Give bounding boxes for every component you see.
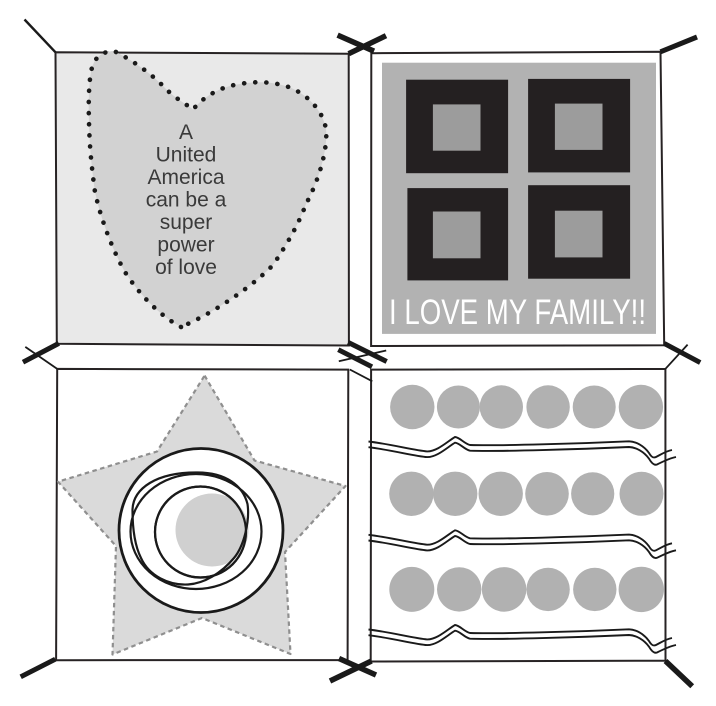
- svg-text:United: United: [156, 144, 217, 167]
- svg-text:America: America: [147, 166, 224, 189]
- svg-text:super: super: [160, 211, 213, 234]
- svg-text:A: A: [179, 121, 193, 144]
- svg-text:can be a: can be a: [146, 189, 227, 212]
- svg-text:power: power: [157, 234, 214, 257]
- svg-text:of love: of love: [155, 256, 217, 279]
- svg-text:I LOVE MY FAMILY!!: I LOVE MY FAMILY!!: [389, 293, 646, 332]
